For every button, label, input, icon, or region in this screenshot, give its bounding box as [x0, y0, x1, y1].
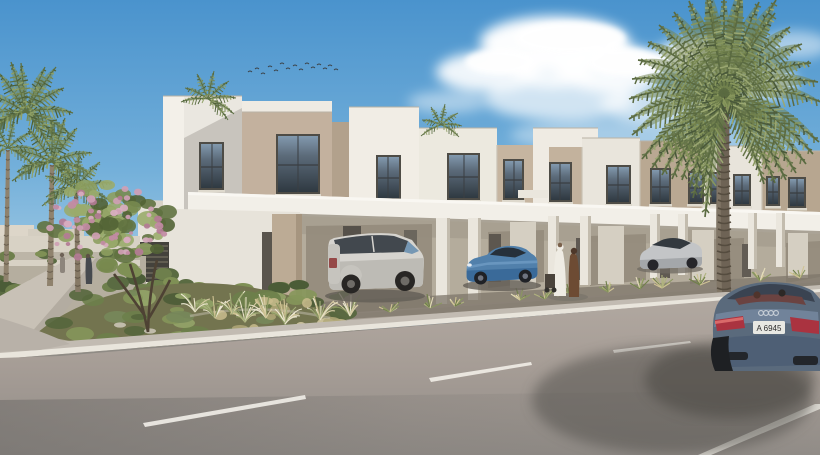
svg-text:A 6945: A 6945 — [757, 324, 782, 333]
